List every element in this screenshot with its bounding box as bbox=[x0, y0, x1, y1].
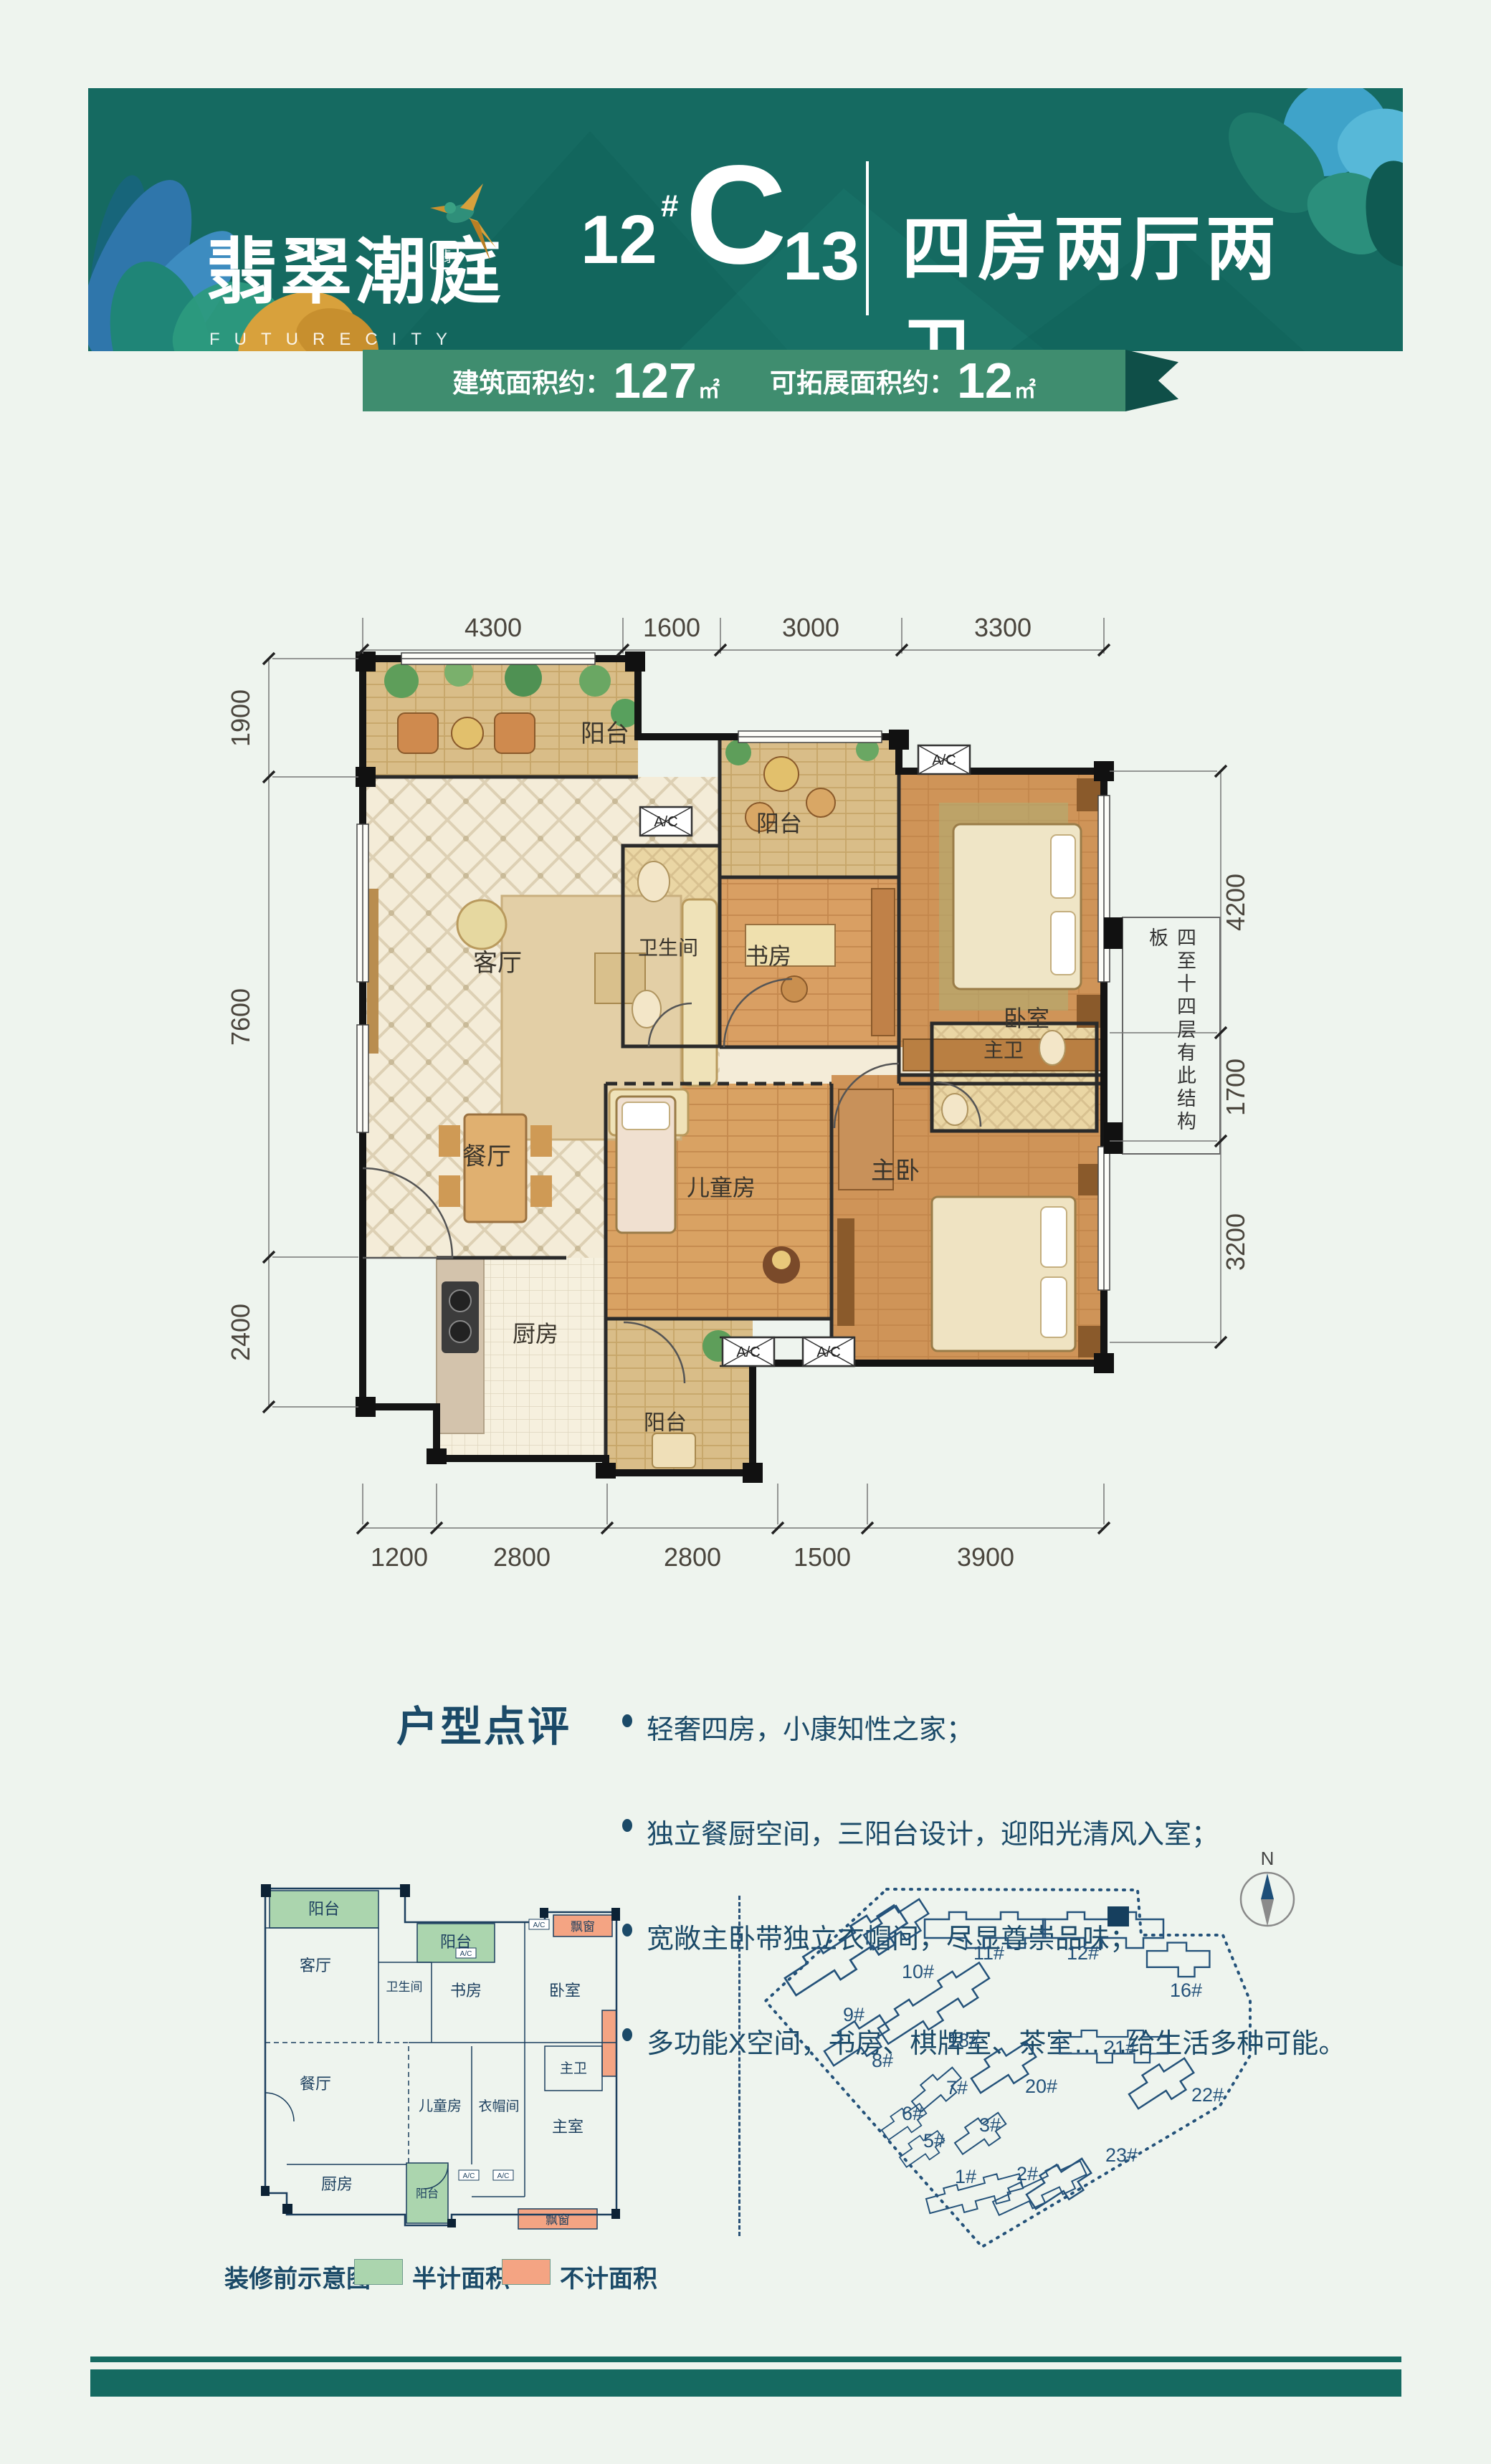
dim-right-2: 1700 bbox=[1221, 1059, 1250, 1116]
bullet-icon bbox=[622, 1819, 632, 1832]
dining-chair bbox=[530, 1175, 552, 1207]
dim-bottom-2: 2800 bbox=[493, 1542, 551, 1572]
review-bullet: 轻奢四房，小康知性之家； bbox=[622, 1707, 973, 1747]
bldg-label: 3# bbox=[979, 2114, 1001, 2136]
pillow bbox=[1051, 835, 1075, 898]
site-map: 9# 10# 11# 12# 16# 18# 8# 7# 20# 21# 6# … bbox=[745, 1835, 1419, 2279]
bldg-label: 1# bbox=[955, 2166, 976, 2187]
dim-right-3: 3200 bbox=[1221, 1213, 1250, 1271]
dim-top-4: 3300 bbox=[974, 613, 1032, 642]
bldg-label: 16# bbox=[1170, 1980, 1202, 2001]
mini-label-bedroom: 卧室 bbox=[549, 1982, 581, 2000]
highlighted-unit bbox=[1107, 1906, 1129, 1926]
sink bbox=[942, 1094, 968, 1125]
balcony-table bbox=[764, 757, 799, 791]
label-study: 书房 bbox=[745, 943, 791, 969]
balcony-chair bbox=[495, 713, 535, 753]
dim-top-3: 3000 bbox=[782, 613, 839, 642]
poster-page: 翡翠潮庭 翡 FUTURECITY 12 # C 13 四房两厅两卫 bbox=[0, 0, 1491, 2464]
nightstand bbox=[1078, 1164, 1101, 1195]
label-balcony2: 阳台 bbox=[756, 811, 802, 836]
mini-ac-label: A/C bbox=[463, 2172, 475, 2180]
label-balcony1: 阳台 bbox=[581, 720, 629, 748]
balcony-chair bbox=[398, 713, 438, 753]
mini-ac-label: A/C bbox=[460, 1950, 472, 1958]
label-master-bath: 主卫 bbox=[983, 1039, 1024, 1061]
pillow bbox=[622, 1102, 670, 1130]
dim-bottom-4: 1500 bbox=[794, 1542, 851, 1572]
bldg-label: 18# bbox=[948, 2030, 980, 2051]
ac-label: A/C bbox=[816, 1345, 840, 1360]
washer bbox=[652, 1433, 695, 1468]
dim-left-2: 7600 bbox=[226, 988, 255, 1046]
dim-bottom-3: 2800 bbox=[664, 1542, 721, 1572]
north-compass-icon: N bbox=[1241, 1848, 1294, 1926]
bldg-label: 7# bbox=[946, 2077, 968, 2098]
legend-half-label: 半计面积 bbox=[412, 2259, 510, 2294]
balcony-table bbox=[452, 717, 483, 749]
pillow bbox=[1041, 1207, 1067, 1267]
nightstand bbox=[1078, 1326, 1101, 1357]
plant bbox=[725, 740, 751, 765]
bldg-label: 2# bbox=[1016, 2163, 1038, 2184]
ac-label: A/C bbox=[736, 1345, 760, 1360]
legend-none-swatch bbox=[502, 2259, 551, 2285]
mini-label-master: 主室 bbox=[552, 2118, 583, 2136]
legend-half-swatch bbox=[354, 2259, 403, 2285]
bldg-label: 6# bbox=[902, 2103, 923, 2124]
dim-right-1: 4200 bbox=[1221, 874, 1250, 931]
bldg-label: 9# bbox=[843, 2004, 864, 2025]
mini-label-living: 客厅 bbox=[300, 1957, 331, 1974]
dim-left-3: 2400 bbox=[226, 1304, 255, 1361]
dim-bottom-1: 1200 bbox=[371, 1542, 428, 1572]
section-divider bbox=[738, 1896, 740, 2236]
floor-plan: A/C A/C A/C A/C 阳台 客厅 卫生间 阳台 书房 卧室 餐厅 儿童… bbox=[0, 0, 1491, 1648]
dresser bbox=[837, 1218, 854, 1326]
mini-label-study: 书房 bbox=[450, 1982, 482, 2000]
bookshelf bbox=[872, 889, 895, 1036]
mini-label-cloak: 衣帽间 bbox=[478, 2098, 519, 2114]
bullet-icon bbox=[622, 1714, 632, 1727]
bldg-label: 22# bbox=[1191, 2084, 1224, 2106]
mini-label-kids: 儿童房 bbox=[419, 2098, 462, 2114]
lamp bbox=[772, 1251, 791, 1269]
dining-chair bbox=[439, 1175, 460, 1207]
footer-rule-thin bbox=[90, 2356, 1401, 2362]
mini-label-balcony-tl: 阳台 bbox=[308, 1900, 340, 1918]
north-label: N bbox=[1261, 1848, 1275, 1869]
label-living: 客厅 bbox=[473, 950, 522, 977]
review-bullet-text: 轻奢四房，小康知性之家； bbox=[647, 1707, 973, 1747]
bldg-label: 5# bbox=[923, 2130, 945, 2152]
site-buildings bbox=[781, 1892, 1209, 2222]
structural-slab-note: 四至十四层有此结构板 bbox=[1127, 927, 1216, 1147]
sofa bbox=[682, 899, 717, 1086]
label-bath: 卫生间 bbox=[638, 937, 698, 959]
legend-note: 装修前示意图 bbox=[224, 2259, 371, 2294]
mini-label-balcony-b: 阳台 bbox=[416, 2187, 439, 2200]
pillow bbox=[1041, 1277, 1067, 1337]
ac-label: A/C bbox=[932, 753, 956, 768]
bldg-label: 21# bbox=[1104, 2037, 1136, 2058]
mini-label-bath: 卫生间 bbox=[386, 1980, 423, 1994]
footer-rule-thick bbox=[90, 2369, 1401, 2397]
mini-floor-plan: A/C A/C A/C A/C 阳台 客厅 卫生间 阳台 书房 卧室 飘窗 餐厅… bbox=[244, 1878, 652, 2250]
bldg-label: 11# bbox=[973, 1942, 1004, 1964]
label-dining: 餐厅 bbox=[462, 1143, 511, 1170]
mini-ac-label: A/C bbox=[497, 2172, 510, 2180]
bldg-label: 20# bbox=[1025, 2076, 1057, 2097]
bldg-label: 23# bbox=[1105, 2144, 1138, 2166]
dim-bottom-5: 3900 bbox=[957, 1542, 1014, 1572]
dim-top-2: 1600 bbox=[643, 613, 700, 642]
label-kids: 儿童房 bbox=[687, 1175, 756, 1200]
ac-label: A/C bbox=[654, 814, 677, 830]
label-balcony3: 阳台 bbox=[644, 1411, 687, 1435]
burner bbox=[449, 1290, 471, 1312]
toilet bbox=[1039, 1031, 1065, 1065]
dining-chair bbox=[530, 1125, 552, 1157]
mini-ac-label: A/C bbox=[533, 1921, 546, 1929]
review-title: 户型点评 bbox=[396, 1693, 571, 1753]
mini-label-bay-br: 飘窗 bbox=[546, 2213, 570, 2227]
bldg-label: 10# bbox=[902, 1961, 934, 1982]
label-kitchen: 厨房 bbox=[513, 1321, 558, 1347]
dim-top-1: 4300 bbox=[465, 613, 522, 642]
side-table bbox=[457, 900, 506, 949]
pillow bbox=[1051, 912, 1075, 975]
label-master: 主卧 bbox=[871, 1157, 920, 1185]
site-building-labels: 9# 10# 11# 12# 16# 18# 8# 7# 20# 21# 6# … bbox=[843, 1942, 1224, 2187]
mini-label-balcony-tm: 阳台 bbox=[440, 1933, 472, 1951]
label-bedroom: 卧室 bbox=[1004, 1006, 1049, 1031]
mini-label-bay-tr: 飘窗 bbox=[571, 1920, 595, 1934]
bldg-label: 12# bbox=[1067, 1942, 1099, 1964]
toilet bbox=[638, 861, 670, 902]
balcony-chair bbox=[806, 788, 835, 817]
legend-none-label: 不计面积 bbox=[560, 2259, 657, 2294]
dim-left-1: 1900 bbox=[226, 689, 255, 747]
mini-label-master-bath: 主卫 bbox=[560, 2061, 587, 2076]
mini-label-kitchen: 厨房 bbox=[321, 2175, 353, 2193]
mini-label-dining: 餐厅 bbox=[300, 2075, 331, 2093]
bldg-label: 8# bbox=[872, 2050, 893, 2071]
nightstand bbox=[1077, 778, 1101, 811]
dining-chair bbox=[439, 1125, 460, 1157]
burner bbox=[449, 1321, 471, 1342]
